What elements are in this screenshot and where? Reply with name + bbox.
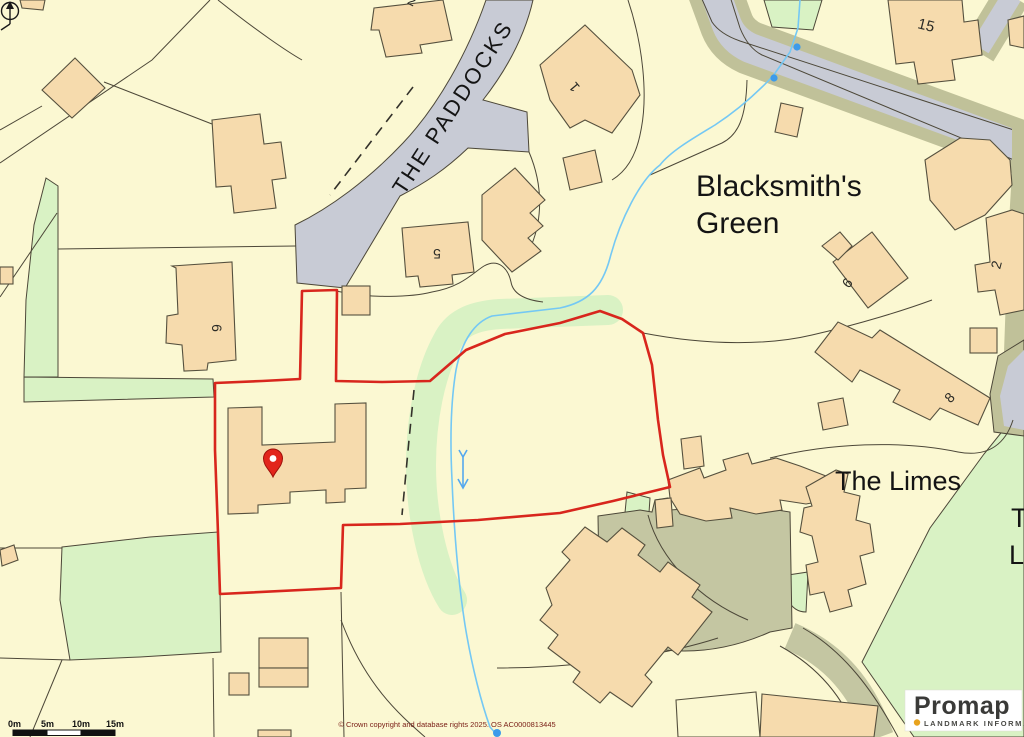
area-label-edge-partial-2: L: [1009, 540, 1024, 570]
map-canvas[interactable]: THE PADDOCKS Blacksmith's Green The Lime…: [0, 0, 1024, 737]
area-label-blacksmiths-green-1: Blacksmith's: [696, 170, 862, 203]
copyright-text: © Crown copyright and database rights 20…: [338, 720, 555, 729]
map-viewport[interactable]: THE PADDOCKS Blacksmith's Green The Lime…: [0, 0, 1024, 737]
building: [259, 638, 308, 668]
building: [818, 398, 848, 430]
area-label-the-limes: The Limes: [835, 466, 961, 496]
scale-label-15m: 15m: [106, 719, 124, 729]
building-number: 5: [433, 246, 441, 262]
culvert-dot: [770, 74, 777, 81]
building: [20, 0, 45, 10]
building: [970, 328, 997, 353]
logo-dot-icon: [914, 719, 920, 725]
scale-label-10m: 10m: [72, 719, 90, 729]
culvert-dot: [493, 729, 501, 737]
building: [229, 673, 249, 695]
promap-logo: Promap LANDMARK INFORMATION: [905, 690, 1024, 731]
scale-label-0m: 0m: [8, 719, 21, 729]
building: [0, 267, 13, 284]
culvert-dot: [793, 43, 800, 50]
building: [258, 730, 291, 737]
building: [681, 436, 704, 469]
scale-label-5m: 5m: [41, 719, 54, 729]
building: [563, 150, 602, 190]
promap-logo-brand: Promap: [914, 692, 1010, 720]
building-unfilled: [676, 692, 760, 737]
area-label-blacksmiths-green-2: Green: [696, 207, 779, 240]
building: [655, 498, 673, 528]
building: [342, 286, 370, 315]
area-label-edge-partial-1: T: [1011, 503, 1024, 533]
building-number: 6: [209, 324, 225, 332]
building: [259, 668, 308, 687]
building: [1008, 16, 1024, 48]
promap-logo-subtitle: LANDMARK INFORMATION: [924, 719, 1024, 728]
